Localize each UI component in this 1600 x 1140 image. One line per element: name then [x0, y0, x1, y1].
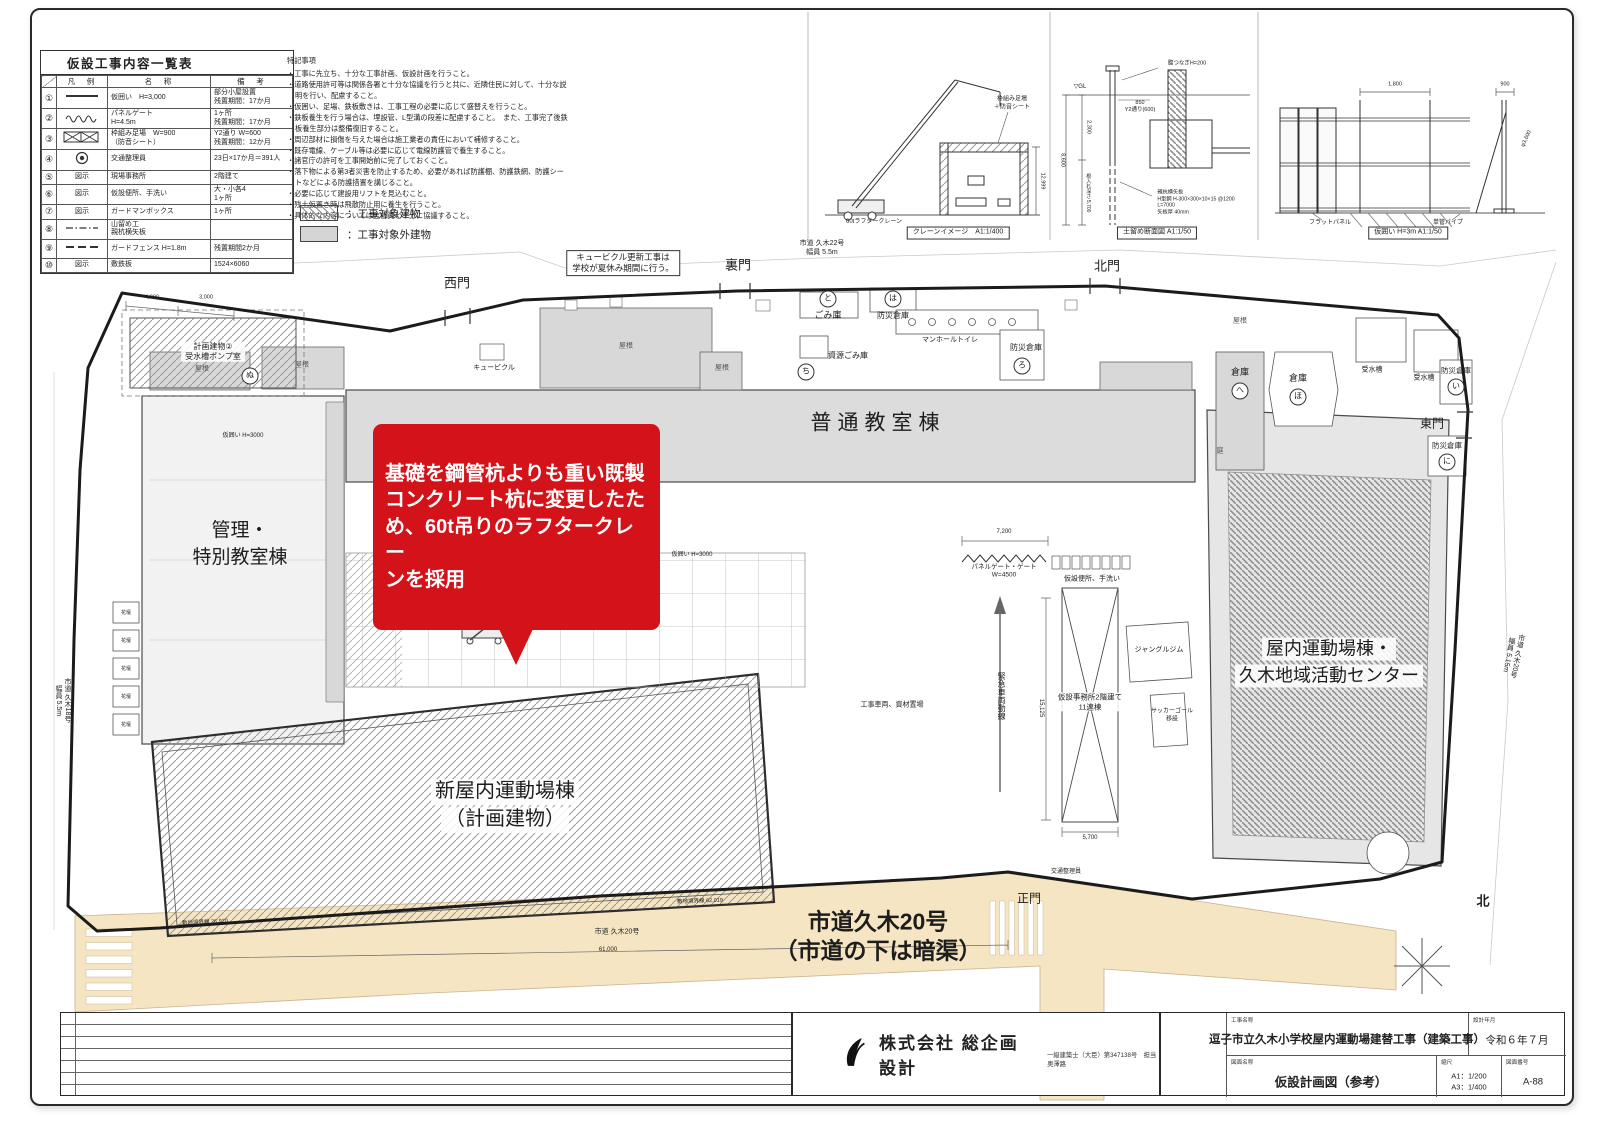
hatch-legend-label: ：工事対象建物: [347, 206, 421, 221]
legend-cell: 現場事務所: [108, 170, 211, 184]
legend-cell: ⑤: [42, 170, 57, 184]
design-date-label: 設計年月: [1473, 1016, 1495, 1024]
panel-retaining-section: [1062, 66, 1250, 225]
legend-cell: 1ヶ所: [211, 205, 293, 219]
note-item: 必要に応じて建設用リフトを見込むこと。: [287, 189, 569, 200]
note-item: 鉄板養生を行う場合は、埋設管、L型溝の段差に配慮すること。 また、工事完了後鉄板…: [287, 113, 569, 135]
note-item: 工事に先立ち、十分な工事計画、仮設計画を行うこと。: [287, 69, 569, 80]
legend-cell: ⑨: [42, 240, 57, 259]
note-item: 周辺部材に損傷を与えた場合は施工業者の責任において補修すること。: [287, 135, 569, 146]
legend-cell: 交通整理員: [108, 149, 211, 170]
scale-label: 縮尺: [1441, 1058, 1452, 1066]
legend-cell: [57, 129, 108, 150]
hatch-legend-item: ：工事対象外建物: [300, 226, 431, 242]
legend-row: ①仮囲い H=3,000部分小屋設置 残置期間：17か月: [42, 88, 293, 109]
legend-cell: Y2通り W=600 残置期間：12か月: [211, 129, 293, 150]
revision-table: [60, 1012, 792, 1096]
legend-cell: [57, 88, 108, 109]
callout-pointer: [499, 629, 533, 665]
legend-cell: 残置期間2か月: [211, 240, 293, 259]
legend-cell: [211, 219, 293, 240]
hatch-swatch-nontarget: [300, 226, 338, 242]
special-notes: 特記事項 工事に先立ち、十分な工事計画、仮設計画を行うこと。道路使用許可等は関係…: [287, 56, 569, 222]
note-item: 既存電線、ケーブル等は必要に応じて電線防護管で養生すること。: [287, 146, 569, 157]
legend-cell: ③: [42, 129, 57, 150]
legend-cell: ④: [42, 149, 57, 170]
change-callout: 基礎を鋼管杭よりも重い既製 コンクリート杭に変更したた め、60t吊りのラフター…: [373, 424, 660, 630]
legend-row: ⑩図示敷鉄板1524×6060: [42, 258, 293, 272]
legend-cell: 仮設便所、手洗い: [108, 184, 211, 205]
revision-table-left-column: [75, 1013, 76, 1095]
design-date: 令和６年７月: [1486, 1033, 1549, 1048]
hatch-legend-item: ：工事対象建物: [300, 205, 431, 221]
drawing-number: A-88: [1523, 1077, 1543, 1088]
notes-title: 特記事項: [287, 56, 569, 67]
legend-cell: 仮囲い H=3,000: [108, 88, 211, 109]
hatch-legend-label: ：工事対象外建物: [347, 227, 431, 242]
legend-cell: ⑧: [42, 219, 57, 240]
legend-cell: ⑩: [42, 258, 57, 272]
project-name-label: 工事名称: [1231, 1016, 1253, 1024]
legend-cell: ①: [42, 88, 57, 109]
legend-cell: 部分小屋設置 残置期間：17か月: [211, 88, 293, 109]
legend-header-remark: 備 考: [211, 76, 293, 88]
drawing-name-label: 図面名称: [1231, 1058, 1253, 1066]
legend-cell: 枠組み足場 W=900 （防音シート）: [108, 129, 211, 150]
hatch-swatch-target: [300, 205, 338, 221]
company-name: 株式会社 総企画設計: [879, 1029, 1027, 1079]
note-item: 諸官庁の許可を工事開始前に完了しておくこと。: [287, 156, 569, 167]
legend-cell: [57, 149, 108, 170]
legend-header-symbol: 凡 例: [57, 76, 108, 88]
project-name: 逗子市立久木小学校屋内運動場建替工事（建築工事）: [1209, 1031, 1485, 1047]
legend-cell: 23日×17か月＝391人: [211, 149, 293, 170]
north-mark: [1394, 938, 1450, 994]
company-block: 株式会社 総企画設計 一級建築士（大臣）第347138号 担当 奥澤路: [792, 1012, 1160, 1096]
legend-cell: 2階建て: [211, 170, 293, 184]
legend-cell: ガードフェンス H=1.8m: [108, 240, 211, 259]
legend-cell: 図示: [57, 258, 108, 272]
building-pump-room: [130, 318, 296, 388]
legend-cell: 大・小各4 1ヶ所: [211, 184, 293, 205]
legend-cell: 山留め工 親杭横矢板: [108, 219, 211, 240]
legend-cell: 図示: [57, 170, 108, 184]
hatch-legend: ：工事対象建物 ：工事対象外建物: [300, 205, 431, 247]
legend-header-row: 凡 例 名 称 備 考: [42, 76, 293, 88]
legend-row: ②パネルゲート H=4.5m1ヶ所 残置期間：17か月: [42, 108, 293, 129]
legend-header-name: 名 称: [108, 76, 211, 88]
legend-cell: ガードマンボックス: [108, 205, 211, 219]
legend-row: ③枠組み足場 W=900 （防音シート）Y2通り W=600 残置期間：12か月: [42, 129, 293, 150]
legend-cell: ②: [42, 108, 57, 129]
legend-table-title: 仮設工事内容一覧表: [41, 51, 293, 75]
note-item: 仮囲い、足場、鉄板敷きは、工事工程の必要に応じて盛替えを行うこと。: [287, 102, 569, 113]
legend-corner-cell: [42, 76, 57, 88]
legend-cell: [57, 240, 108, 259]
legend-cell: [57, 219, 108, 240]
legend-cell: 1524×6060: [211, 258, 293, 272]
legend-cell: 図示: [57, 205, 108, 219]
panel-crane-image: [825, 80, 1040, 220]
drawing-number-label: 図面番号: [1506, 1058, 1528, 1066]
panel-fence-detail: [1275, 88, 1545, 227]
legend-cell: 敷鉄板: [108, 258, 211, 272]
legend-cell: 1ヶ所 残置期間：17か月: [211, 108, 293, 129]
legend-row: ⑦図示ガードマンボックス1ヶ所: [42, 205, 293, 219]
legend-cell: [57, 108, 108, 129]
drawing-info-block: 工事名称 設計年月 図面名称 縮尺 図面番号 逗子市立久木小学校屋内運動場建替工…: [1160, 1012, 1565, 1096]
legend-row: ⑥図示仮設便所、手洗い大・小各4 1ヶ所: [42, 184, 293, 205]
drawing-name: 仮設計画図（参考）: [1275, 1072, 1388, 1091]
company-logo: [841, 1036, 867, 1073]
legend-table: 仮設工事内容一覧表 凡 例 名 称 備 考 ①仮囲い H=3,000部分小屋設置…: [40, 50, 294, 274]
legend-cell: ⑦: [42, 205, 57, 219]
note-item: 落下物による第3者災害を防止するため、必要があれば防護棚、防護鉄網、防護シートな…: [287, 167, 569, 189]
legend-cell: ⑥: [42, 184, 57, 205]
legend-cell: 図示: [57, 184, 108, 205]
note-item: 道路使用許可等は関係各署と十分な協議を行うと共に、近隣住民に対して、十分な説明を…: [287, 80, 569, 102]
license-text: 一級建築士（大臣）第347138号 担当 奥澤路: [1047, 1050, 1159, 1068]
change-callout-text: 基礎を鋼管杭よりも重い既製 コンクリート杭に変更したた め、60t吊りのラフター…: [385, 463, 645, 591]
legend-row: ④交通整理員23日×17か月＝391人: [42, 149, 293, 170]
scale-a1: A1：1/200: [1451, 1071, 1486, 1082]
legend-cell: パネルゲート H=4.5m: [108, 108, 211, 129]
building-admin: [142, 396, 344, 744]
legend-row: ⑨ガードフェンス H=1.8m残置期間2か月: [42, 240, 293, 259]
legend-row: ⑤図示現場事務所2階建て: [42, 170, 293, 184]
scale-a3: A3：1/400: [1451, 1082, 1486, 1093]
legend-row: ⑧山留め工 親杭横矢板: [42, 219, 293, 240]
